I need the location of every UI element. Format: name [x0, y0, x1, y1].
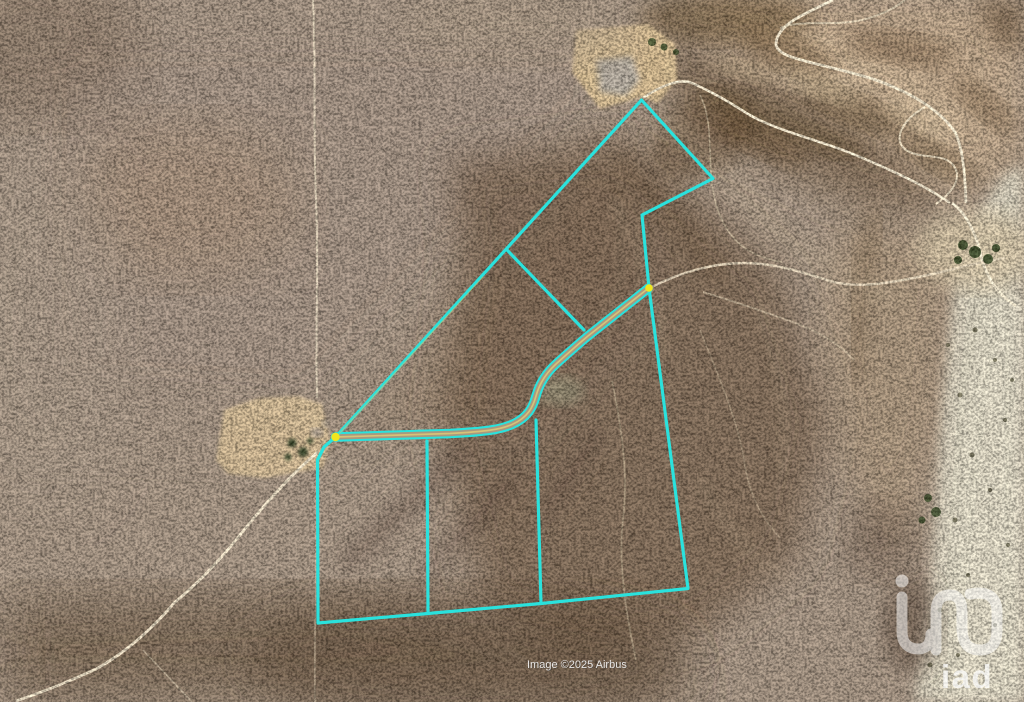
svg-text:Image ©2025 Airbus: Image ©2025 Airbus [527, 659, 627, 671]
svg-text:iad: iad [941, 658, 993, 695]
